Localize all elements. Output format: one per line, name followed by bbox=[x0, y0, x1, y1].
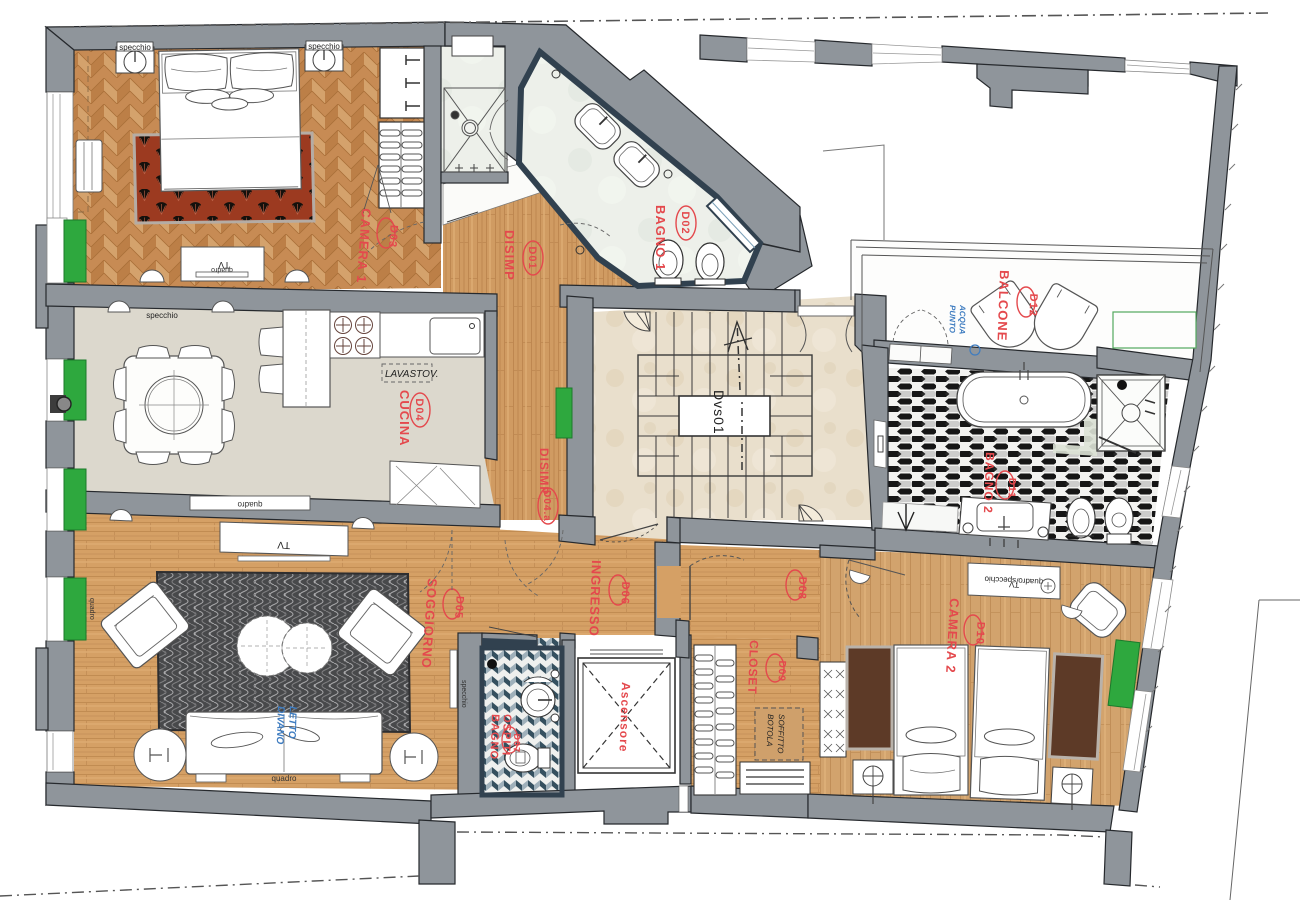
svg-text:quadro: quadro bbox=[237, 500, 262, 509]
svg-text:specchio: specchio bbox=[119, 43, 151, 52]
svg-text:D04: D04 bbox=[413, 398, 425, 421]
svg-text:D04.a: D04.a bbox=[541, 490, 552, 522]
svg-text:specchio: specchio bbox=[146, 311, 178, 320]
svg-text:Dvs01: Dvs01 bbox=[711, 390, 727, 435]
svg-text:specchio: specchio bbox=[308, 42, 340, 51]
svg-text:D05: D05 bbox=[452, 595, 466, 619]
svg-text:D06: D06 bbox=[618, 581, 631, 605]
svg-text:CUCINA: CUCINA bbox=[397, 390, 412, 447]
svg-text:D08: D08 bbox=[795, 576, 808, 600]
svg-text:BALCONE: BALCONE bbox=[995, 270, 1012, 342]
svg-text:DISIMP: DISIMP bbox=[502, 230, 517, 281]
svg-text:D02: D02 bbox=[679, 211, 691, 234]
svg-text:D12: D12 bbox=[1026, 293, 1039, 317]
svg-text:SOFFITTO: SOFFITTO bbox=[776, 714, 786, 754]
svg-text:Ascensore: Ascensore bbox=[617, 682, 633, 753]
svg-text:D10: D10 bbox=[973, 621, 986, 645]
svg-text:D01: D01 bbox=[526, 246, 538, 269]
svg-text:INGRESSO: INGRESSO bbox=[586, 560, 604, 637]
svg-text:D09: D09 bbox=[776, 660, 788, 682]
svg-text:LETTO: LETTO bbox=[286, 706, 298, 739]
svg-text:quadro: quadro bbox=[88, 598, 95, 620]
svg-text:DIVANO: DIVANO bbox=[274, 706, 286, 745]
svg-text:D07: D07 bbox=[512, 733, 523, 753]
svg-text:BAGNO 2: BAGNO 2 bbox=[981, 452, 997, 514]
svg-text:PUNTO: PUNTO bbox=[948, 305, 957, 334]
svg-text:TV: TV bbox=[1008, 580, 1019, 590]
svg-text:TV: TV bbox=[277, 539, 290, 550]
svg-text:quadro: quadro bbox=[272, 774, 297, 783]
svg-text:D03: D03 bbox=[386, 224, 400, 248]
svg-text:OSPITI: OSPITI bbox=[500, 714, 513, 756]
svg-text:BAGNO: BAGNO bbox=[487, 714, 501, 760]
svg-text:specchio: specchio bbox=[460, 680, 467, 708]
svg-text:BAGNO 1: BAGNO 1 bbox=[653, 205, 668, 271]
svg-text:BOTOLA: BOTOLA bbox=[765, 714, 775, 747]
svg-text:LAVASTOV.: LAVASTOV. bbox=[385, 369, 439, 380]
svg-text:CLOSET: CLOSET bbox=[745, 640, 761, 695]
svg-text:quadro: quadro bbox=[211, 266, 233, 273]
svg-text:D11: D11 bbox=[1006, 478, 1018, 499]
svg-text:ACQUA: ACQUA bbox=[957, 304, 967, 335]
